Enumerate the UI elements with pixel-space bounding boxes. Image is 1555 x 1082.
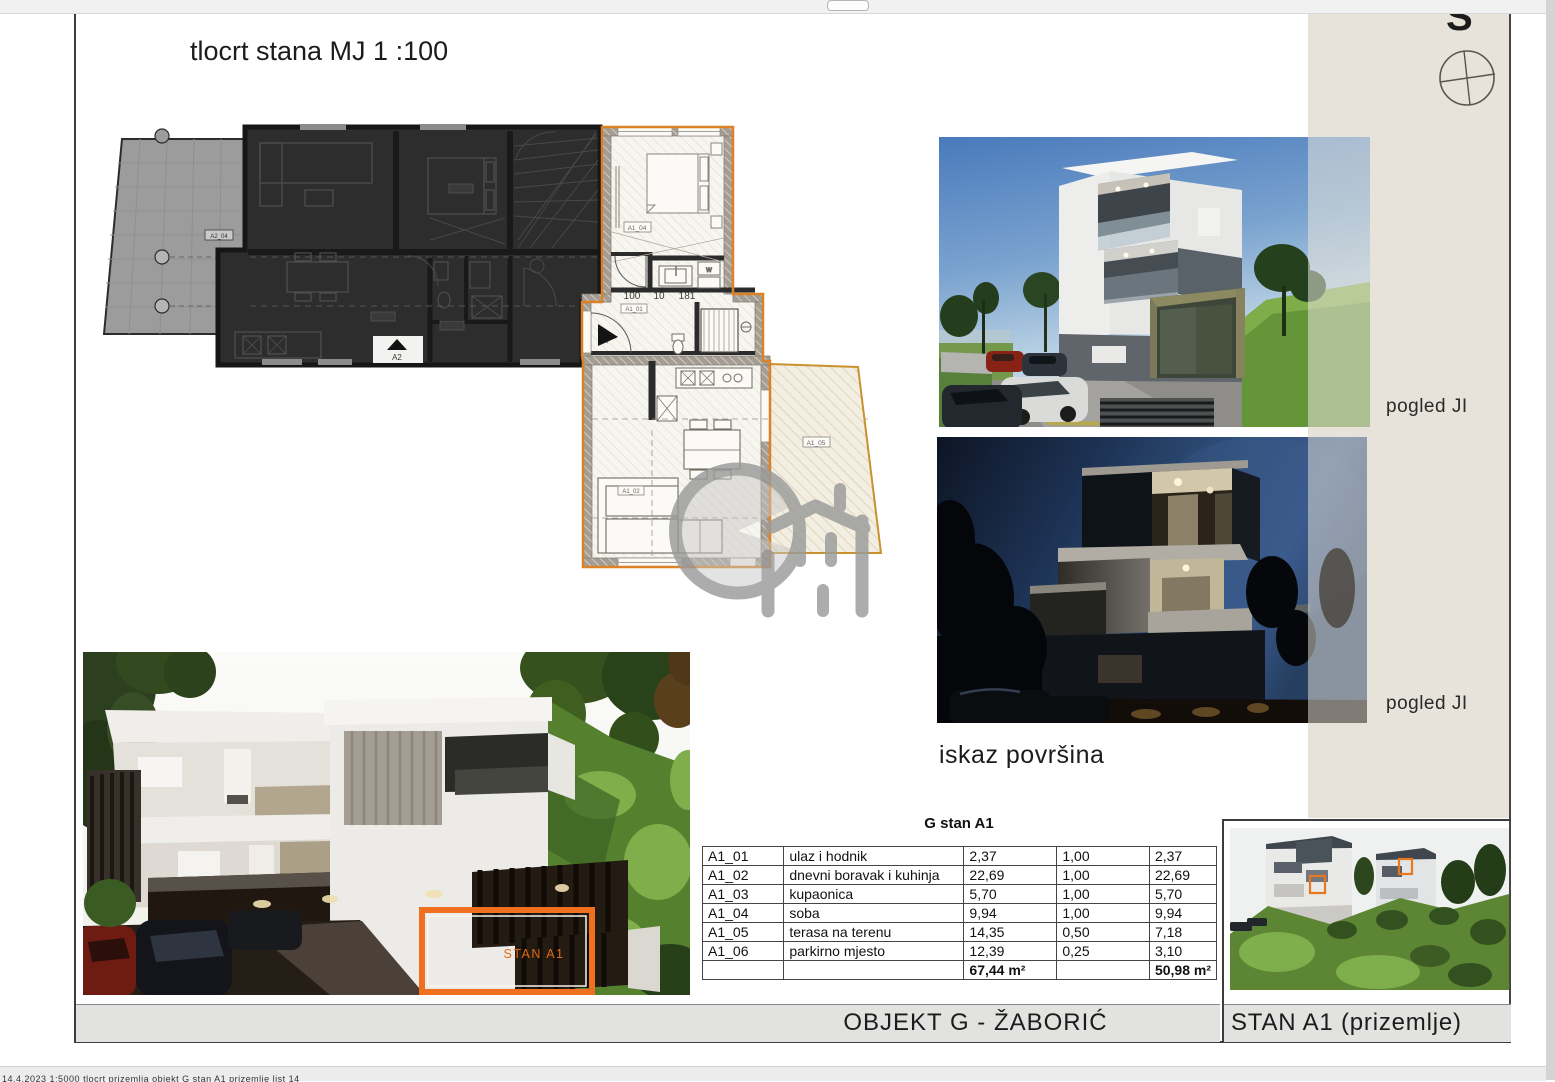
svg-text:STAN A1: STAN A1 (504, 947, 565, 961)
svg-text:A2: A2 (392, 353, 402, 362)
svg-text:10: 10 (653, 291, 665, 302)
svg-text:A1_05: A1_05 (807, 440, 826, 447)
svg-text:A2_04: A2_04 (210, 234, 228, 240)
svg-text:A1_04: A1_04 (628, 225, 647, 232)
svg-text:181: 181 (679, 291, 696, 302)
svg-text:A1_02: A1_02 (622, 489, 640, 495)
svg-text:A1_01: A1_01 (625, 307, 643, 313)
svg-text:100: 100 (624, 291, 641, 302)
svg-text:W: W (706, 268, 712, 274)
